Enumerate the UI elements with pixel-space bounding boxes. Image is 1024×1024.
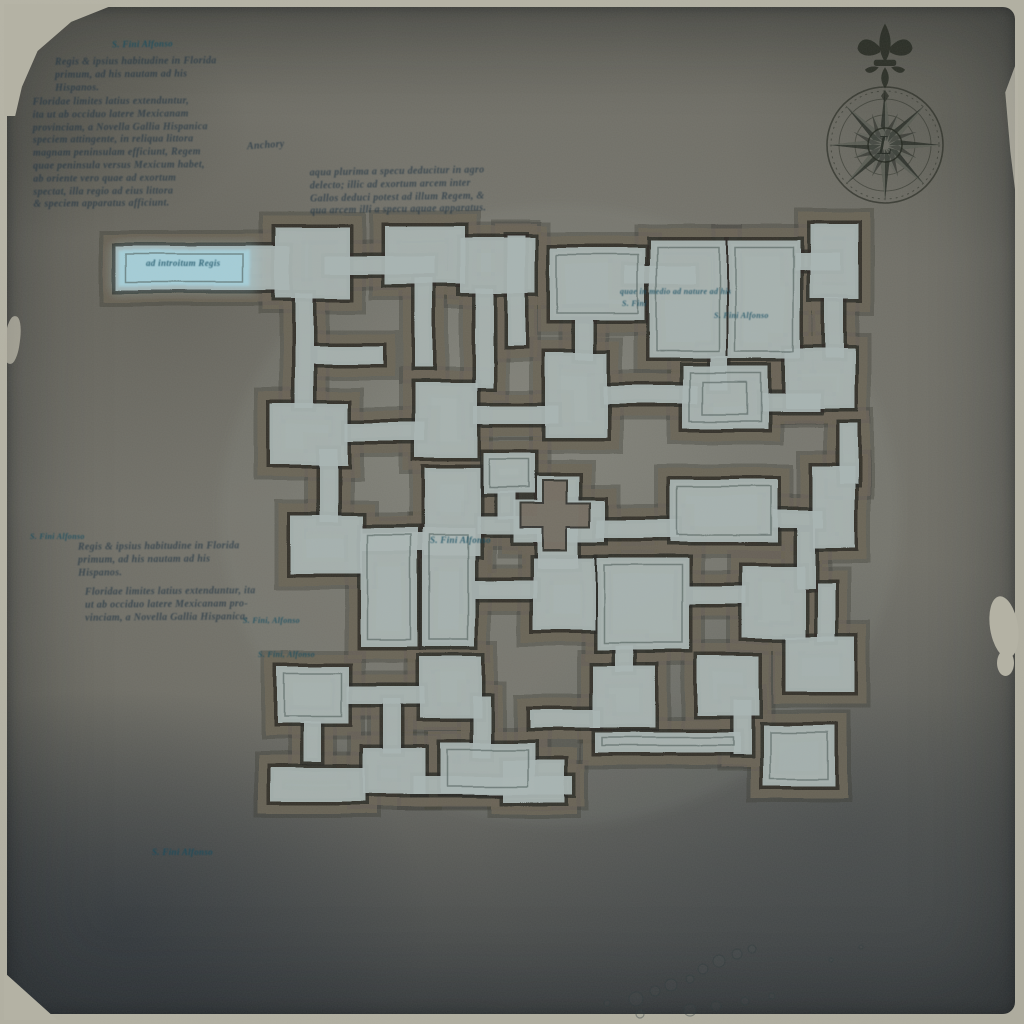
paragraph-4-line: Regis & ipsius habitudine in Florida — [78, 540, 240, 554]
tag-top: S. Fini Alfonso — [112, 38, 173, 51]
tag-left-2: S. Fini, Alfonso — [243, 616, 300, 626]
note-ne-room-line: quae in medio ad nature ad his — [620, 287, 731, 297]
entrance-label: ad introitum Regis — [146, 258, 220, 270]
paragraph-1: Regis & ipsius habitudine in Floridaprim… — [55, 55, 217, 95]
entrance-label-line: ad introitum Regis — [146, 258, 220, 270]
tag-left-1: S. Fini Alfonso — [30, 532, 85, 542]
tag-left-2-line: S. Fini, Alfonso — [243, 616, 300, 626]
paragraph-2: Floridae limites latius extenduntur,ita … — [33, 95, 209, 212]
tag-left-3: S. Fini, Alfonso — [258, 650, 315, 660]
tag-map-center: S. Fini Alfonso — [430, 535, 491, 547]
paragraph-3: aqua plurima a specu deducitur in agrode… — [310, 164, 487, 218]
tag-left-3-line: S. Fini, Alfonso — [258, 650, 315, 660]
paragraph-1-line: Hispanos. — [55, 81, 217, 95]
tag-ne-line: S. Fini Alfonso — [714, 311, 769, 321]
tag-bottom-line: S. Fini Alfonso — [152, 847, 213, 859]
paragraph-4: Regis & ipsius habitudine in Floridaprim… — [78, 540, 240, 580]
tag-ne: S. Fini Alfonso — [714, 311, 769, 321]
note-ne-room-2-line: S. Fini — [622, 299, 647, 309]
word-anchory: Anchory — [247, 139, 285, 154]
tag-left-1-line: S. Fini Alfonso — [30, 532, 85, 542]
paragraph-3-line: qua arcem illi a specu aquae apparatus. — [310, 203, 486, 219]
game-map-screen: { "palette": { "frame": "#b2b0a2", "parc… — [0, 0, 1024, 1024]
paragraph-5-line: vinciam, a Novella Gallia Hispanica. — [85, 611, 256, 625]
note-ne-room: quae in medio ad nature ad his — [620, 287, 731, 297]
paragraph-1-line: Regis & ipsius habitudine in Florida — [55, 55, 217, 69]
paragraph-4-line: Hispanos. — [78, 566, 240, 580]
note-ne-room-2: S. Fini — [622, 299, 647, 309]
word-anchory-line: Anchory — [247, 139, 285, 154]
paragraph-2-line: Floridae limites latius extenduntur, — [33, 95, 208, 109]
paragraph-5: Floridae limites latius extenduntur, ita… — [85, 585, 256, 625]
paragraph-2-line: & speciem apparatus afficiunt. — [33, 198, 208, 212]
handwritten-annotations: S. Fini AlfonsoRegis & ipsius habitudine… — [0, 0, 1024, 1024]
paragraph-2-line: ita ut ab occiduo latere Mexicanam — [33, 108, 208, 122]
tag-top-line: S. Fini Alfonso — [112, 38, 173, 51]
paragraph-5-line: ut ab occiduo latere Mexicanam pro- — [85, 598, 256, 612]
tag-bottom: S. Fini Alfonso — [152, 847, 213, 859]
paragraph-5-line: Floridae limites latius extenduntur, ita — [85, 585, 256, 599]
paragraph-2-line: quae peninsula versus Mexicum habet, — [33, 159, 208, 173]
tag-map-center-line: S. Fini Alfonso — [430, 535, 491, 547]
